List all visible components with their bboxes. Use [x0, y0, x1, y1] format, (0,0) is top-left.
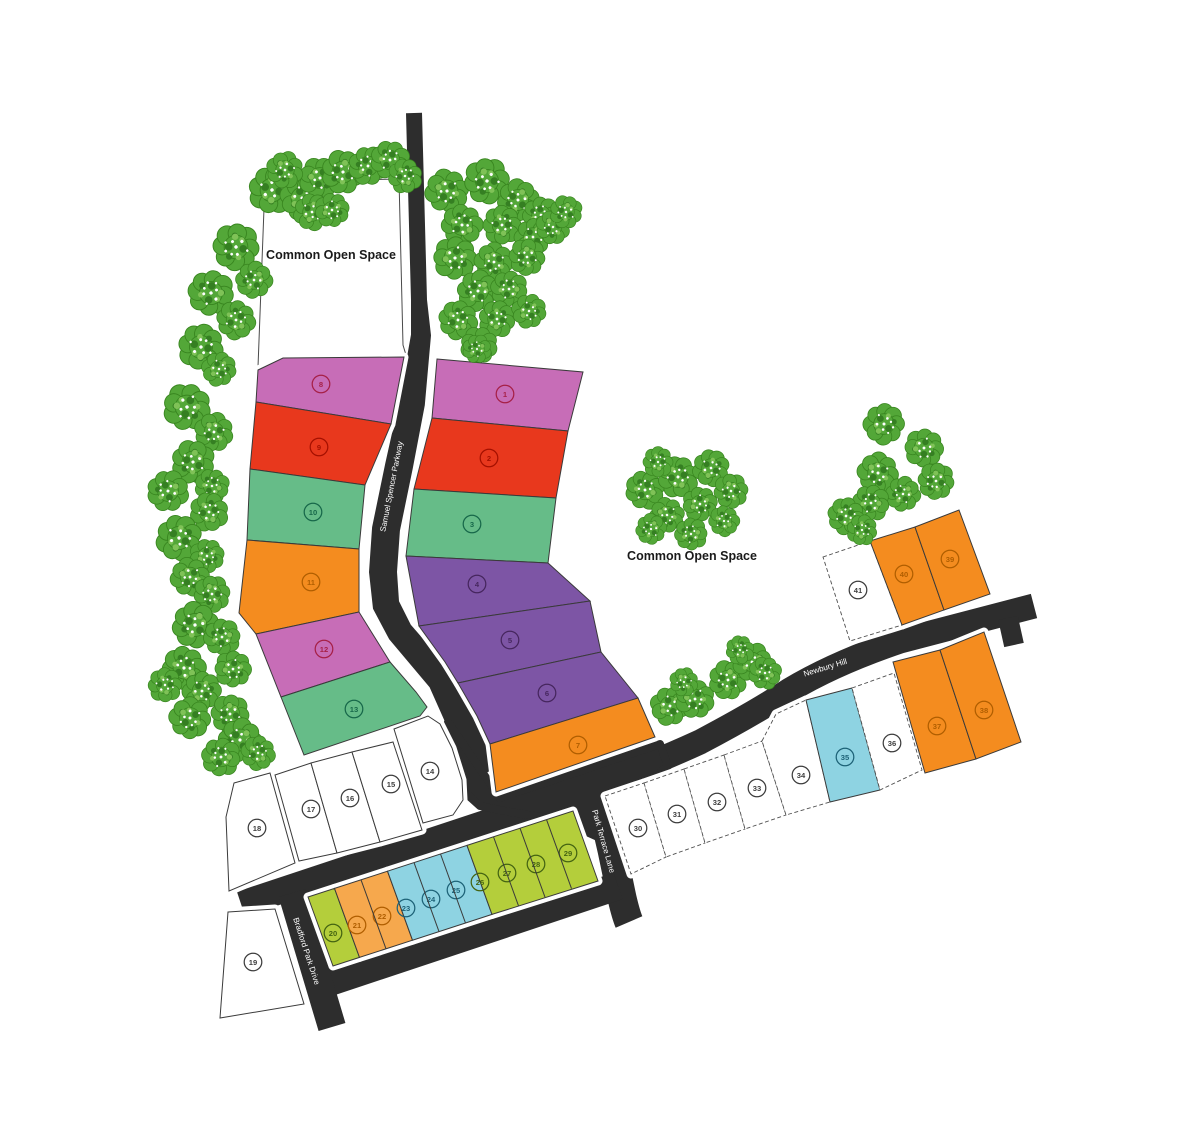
svg-text:25: 25 [452, 886, 461, 895]
svg-text:10: 10 [309, 508, 317, 517]
svg-text:31: 31 [673, 810, 682, 819]
svg-text:37: 37 [933, 722, 941, 731]
svg-text:3: 3 [470, 520, 474, 529]
svg-text:15: 15 [387, 780, 396, 789]
svg-text:14: 14 [426, 767, 435, 776]
svg-text:8: 8 [319, 380, 323, 389]
svg-text:16: 16 [346, 794, 354, 803]
svg-text:9: 9 [317, 443, 321, 452]
svg-text:17: 17 [307, 805, 315, 814]
svg-text:38: 38 [980, 706, 988, 715]
svg-text:19: 19 [249, 958, 257, 967]
svg-text:30: 30 [634, 824, 642, 833]
svg-text:2: 2 [487, 454, 491, 463]
svg-text:11: 11 [307, 578, 316, 587]
svg-text:23: 23 [402, 904, 410, 913]
svg-text:26: 26 [476, 878, 484, 887]
svg-text:32: 32 [713, 798, 721, 807]
svg-text:21: 21 [353, 921, 362, 930]
svg-text:22: 22 [378, 912, 386, 921]
svg-text:6: 6 [545, 689, 549, 698]
svg-text:35: 35 [841, 753, 850, 762]
svg-text:29: 29 [564, 849, 572, 858]
svg-text:Common Open Space: Common Open Space [627, 549, 757, 563]
svg-text:20: 20 [329, 929, 337, 938]
svg-text:41: 41 [854, 586, 863, 595]
svg-text:39: 39 [946, 555, 954, 564]
svg-text:34: 34 [797, 771, 806, 780]
svg-text:7: 7 [576, 741, 580, 750]
svg-text:13: 13 [350, 705, 358, 714]
svg-text:Common Open Space: Common Open Space [266, 248, 396, 262]
svg-text:18: 18 [253, 824, 261, 833]
svg-text:40: 40 [900, 570, 908, 579]
svg-text:12: 12 [320, 645, 328, 654]
svg-text:33: 33 [753, 784, 761, 793]
svg-text:36: 36 [888, 739, 896, 748]
